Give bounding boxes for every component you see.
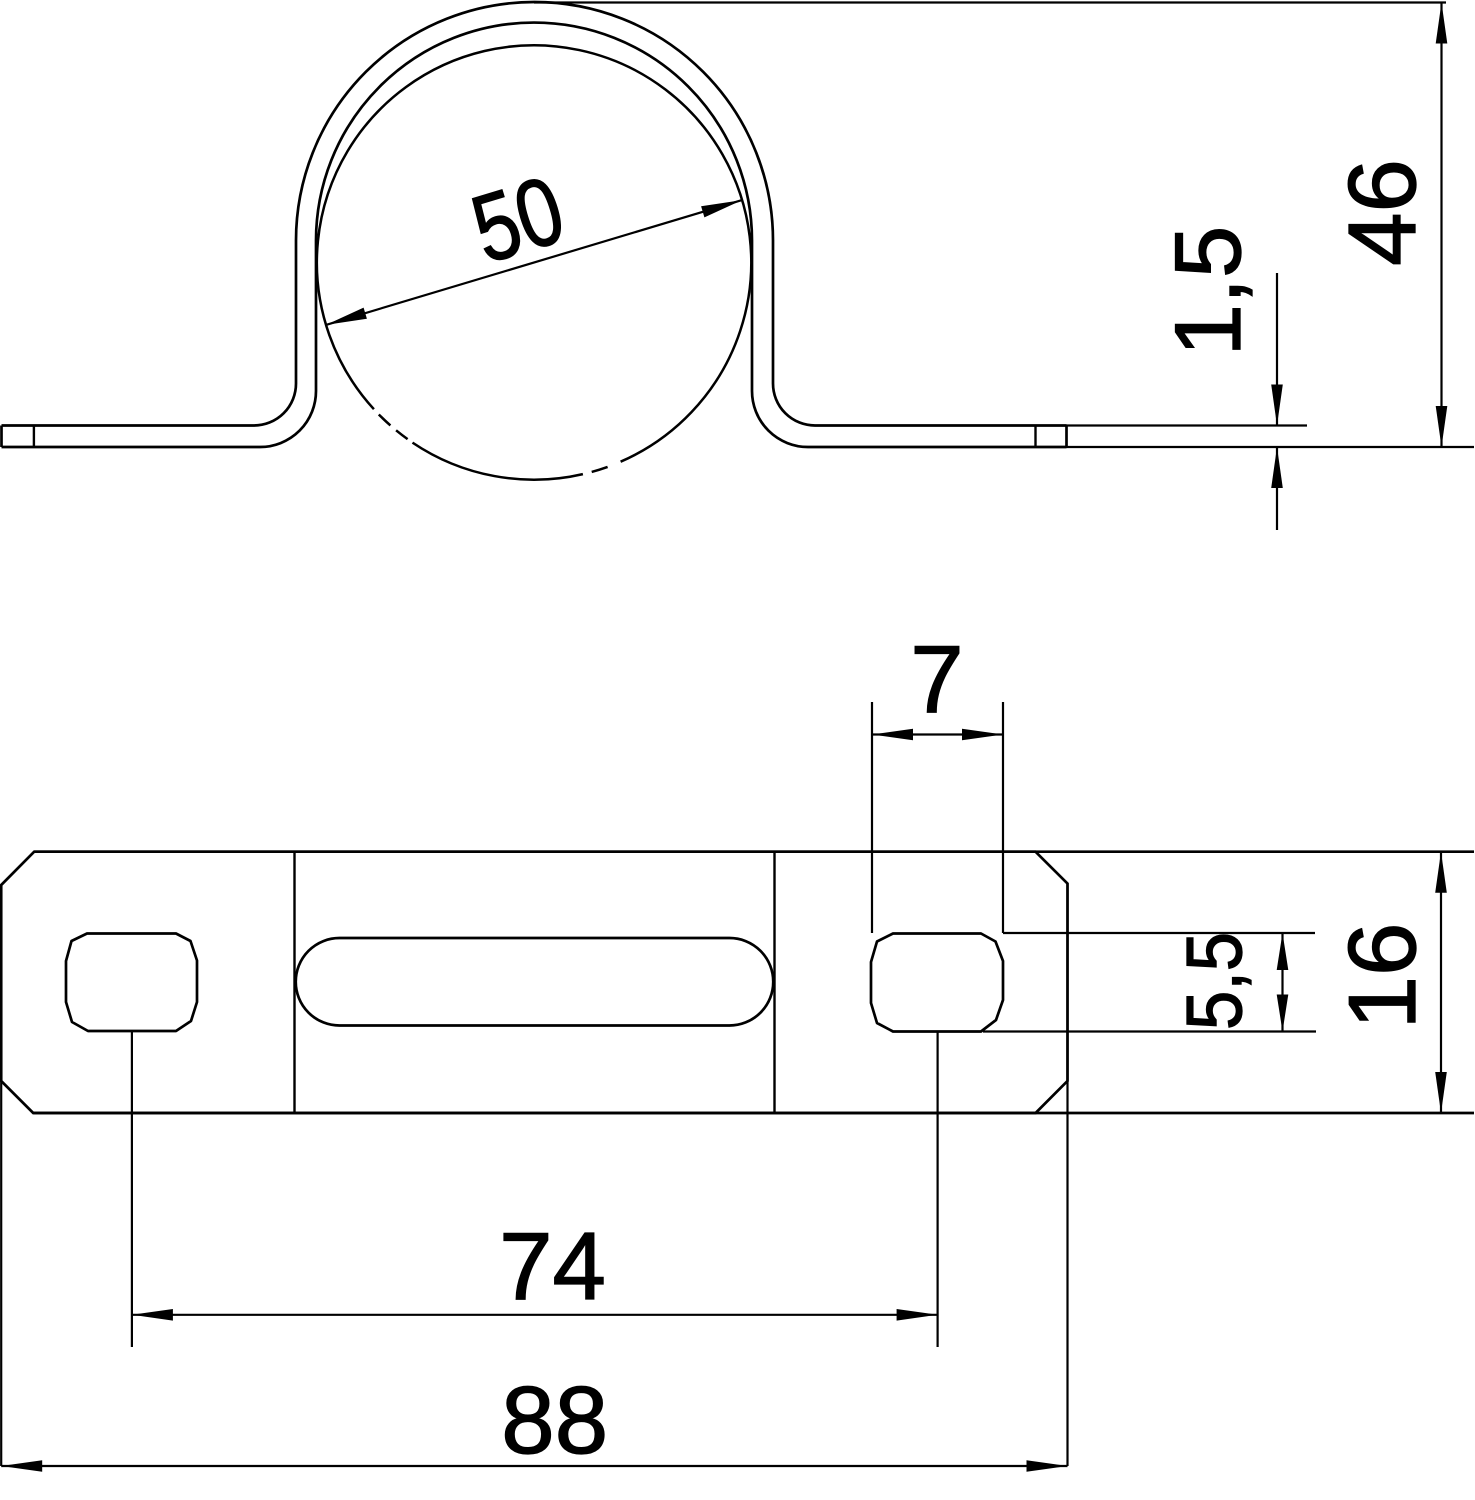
svg-text:46: 46 [1329, 159, 1436, 266]
svg-text:7: 7 [910, 626, 963, 733]
svg-text:1,5: 1,5 [1155, 226, 1260, 357]
svg-text:5,5: 5,5 [1169, 932, 1258, 1030]
svg-text:50: 50 [460, 156, 575, 284]
svg-text:74: 74 [499, 1213, 606, 1320]
svg-text:88: 88 [501, 1367, 608, 1474]
svg-text:16: 16 [1329, 923, 1436, 1030]
